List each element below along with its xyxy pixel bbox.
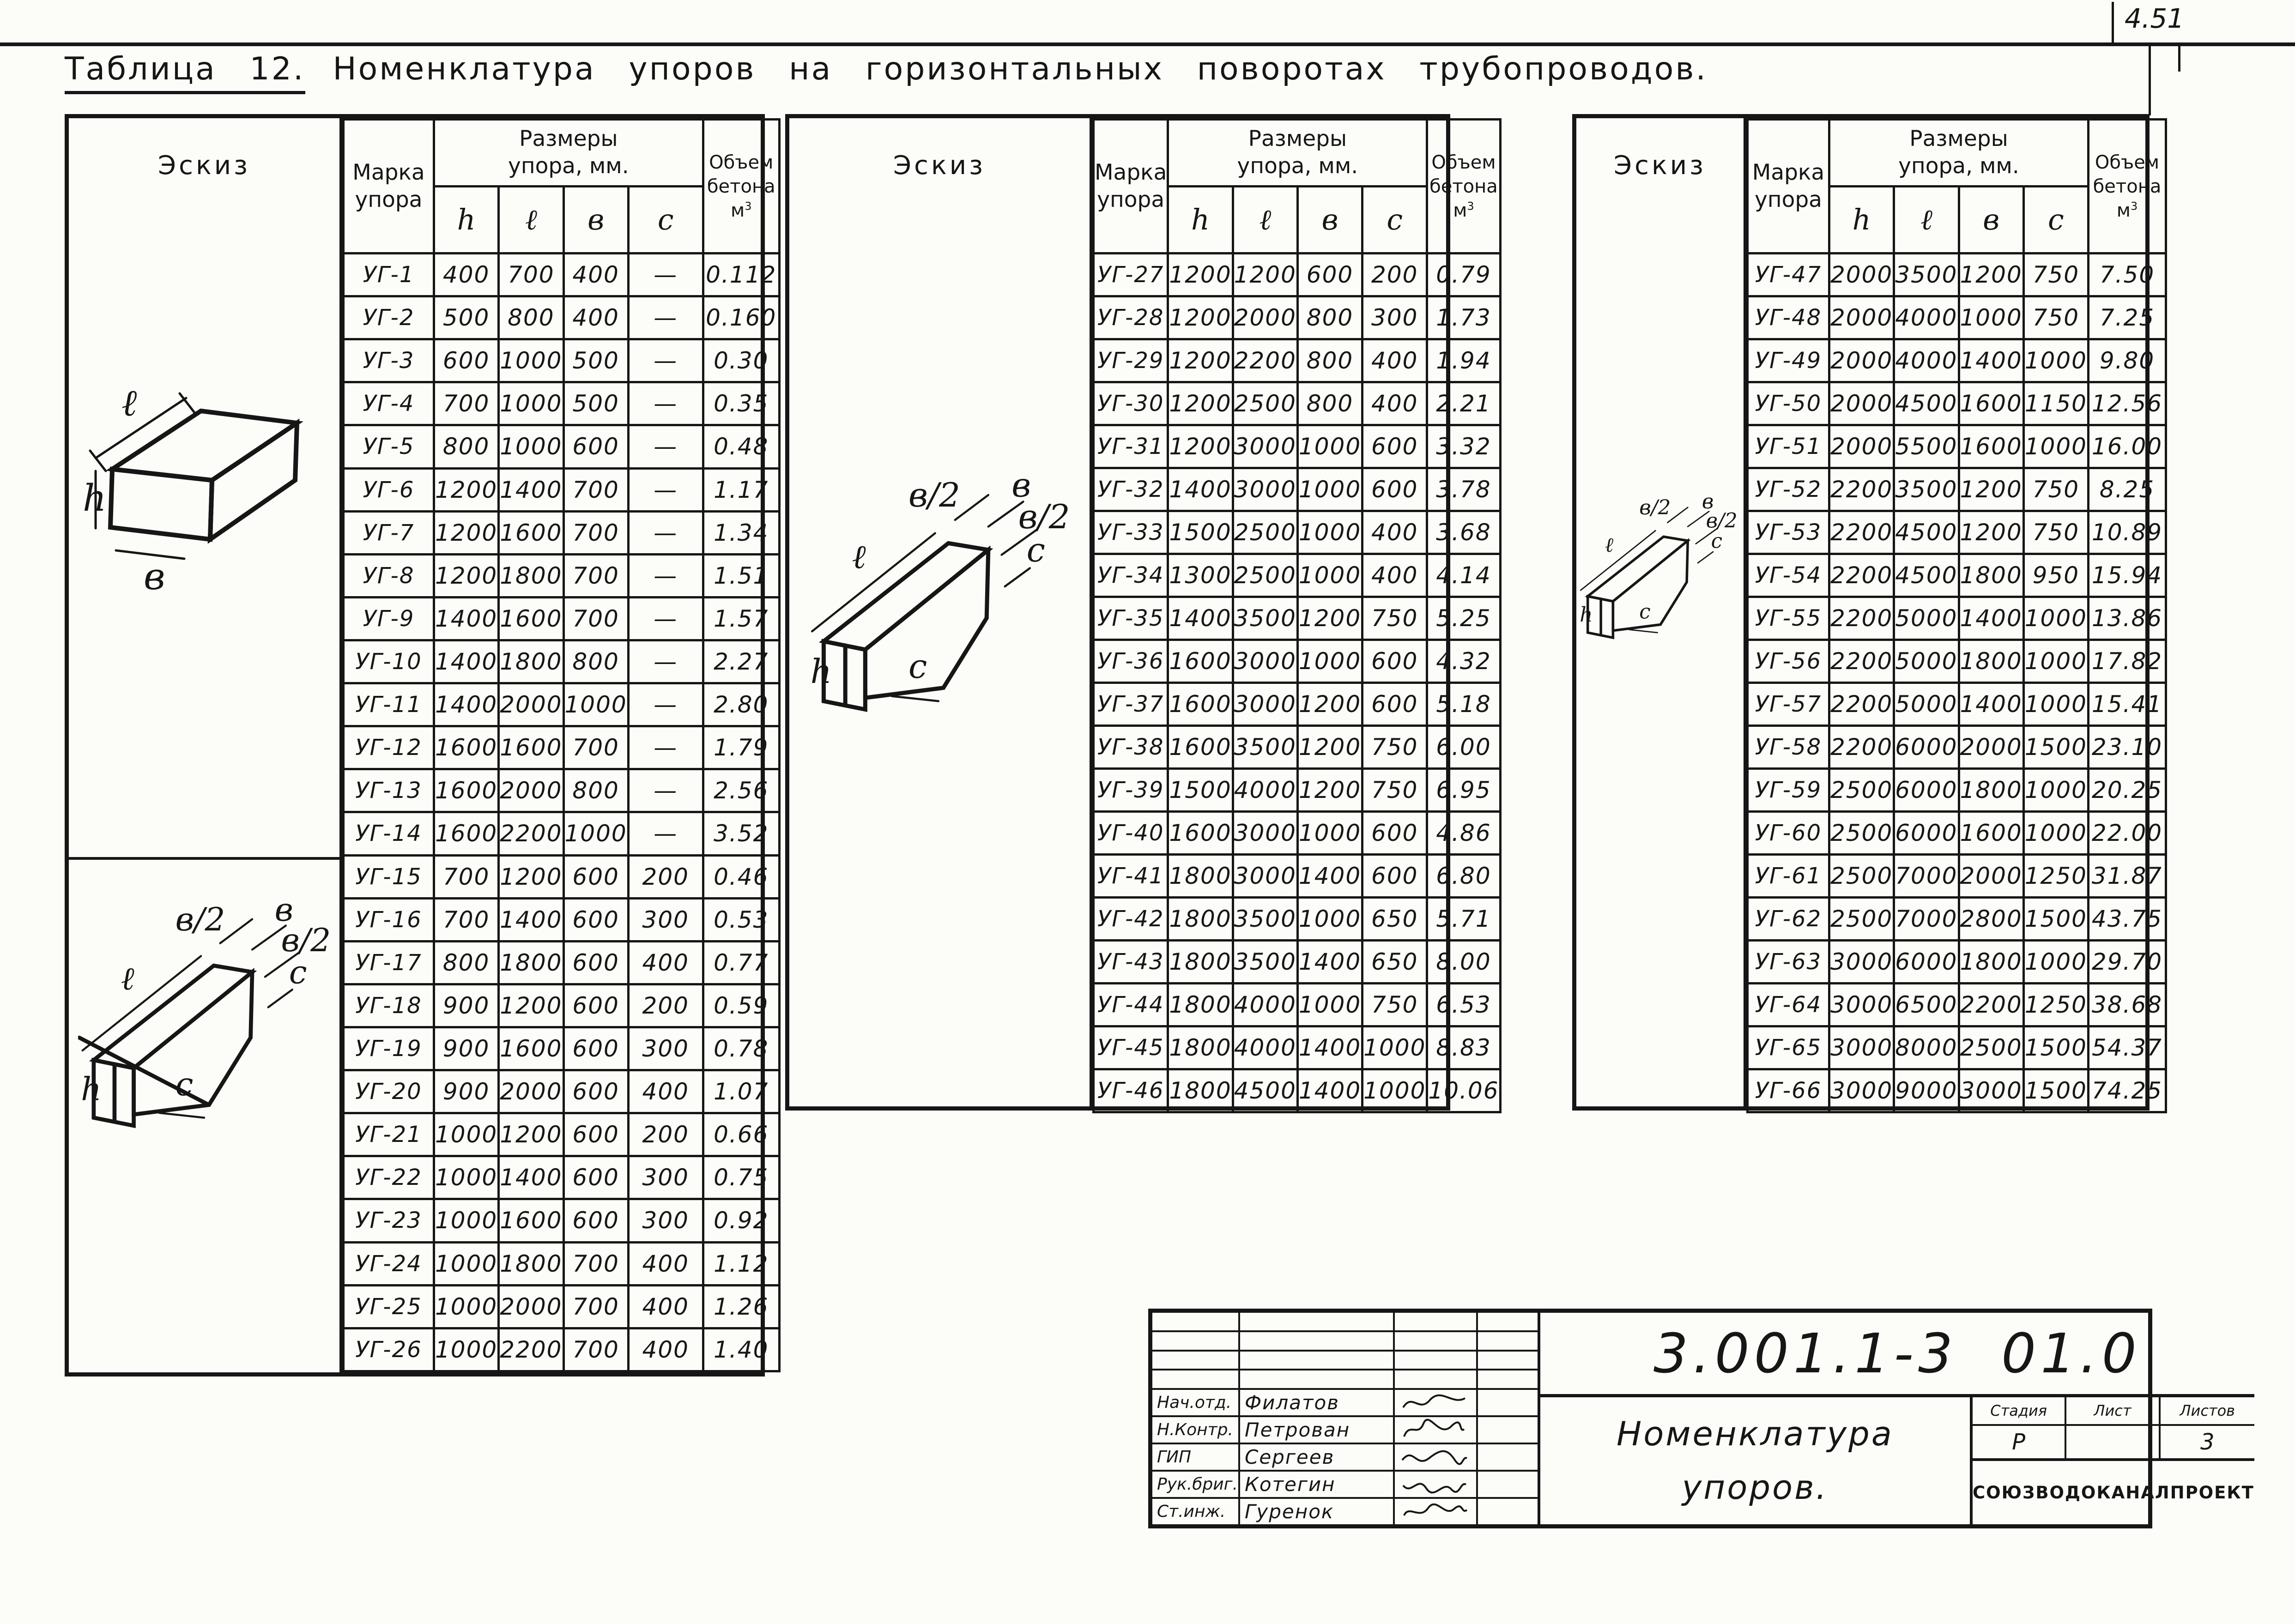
dim-c-label: с xyxy=(908,647,927,686)
empty-row xyxy=(1152,1332,1538,1352)
value-cell: 1600 xyxy=(1168,726,1233,769)
value-cell: 600 xyxy=(563,855,628,898)
value-cell: 1200 xyxy=(1297,597,1362,640)
value-cell: 2500 xyxy=(1959,1026,2023,1069)
value-cell: 4500 xyxy=(1894,382,1959,425)
value-cell: 54.37 xyxy=(2089,1026,2166,1069)
value-cell: 4000 xyxy=(1233,1026,1297,1069)
mark-cell: УГ-56 xyxy=(1748,640,1829,683)
value-cell: 750 xyxy=(1362,726,1427,769)
value-cell: 1000 xyxy=(1297,812,1362,855)
value-cell: 1000 xyxy=(434,1242,499,1285)
table-row: УГ-411800300014006006.80 xyxy=(1094,855,1501,898)
value-cell: 4000 xyxy=(1894,296,1959,339)
value-cell: 600 xyxy=(563,898,628,941)
value-cell: 600 xyxy=(563,1199,628,1242)
mark-cell: УГ-54 xyxy=(1748,554,1829,597)
value-cell: 1800 xyxy=(1168,1026,1233,1069)
value-cell: 4500 xyxy=(1894,554,1959,597)
dim-l-header: ℓ xyxy=(499,187,563,254)
sheets-header: Листов xyxy=(2161,1397,2254,1426)
value-cell: 1.17 xyxy=(703,468,779,511)
value-cell: 3000 xyxy=(1233,425,1297,468)
value-cell: 600 xyxy=(563,1113,628,1156)
table-row: УГ-28120020008003001.73 xyxy=(1094,296,1501,339)
value-cell: 6.00 xyxy=(1427,726,1500,769)
corner-tick-left xyxy=(2112,2,2114,42)
value-cell: 1400 xyxy=(1959,339,2023,382)
value-cell: 400 xyxy=(628,1070,703,1113)
value-cell: 2000 xyxy=(1829,382,1894,425)
value-cell: 1.12 xyxy=(703,1242,779,1285)
mark-cell: УГ-53 xyxy=(1748,511,1829,554)
value-cell: 2500 xyxy=(1829,812,1894,855)
value-cell: 1150 xyxy=(2023,382,2088,425)
table-row: УГ-1014001800800—2.27 xyxy=(344,640,780,683)
table-row: УГ-24100018007004001.12 xyxy=(344,1242,780,1285)
table-row: УГ-64300065002200125038.68 xyxy=(1748,984,2166,1026)
value-cell: 1800 xyxy=(1959,769,2023,812)
table-row: УГ-63300060001800100029.70 xyxy=(1748,941,2166,984)
mark-header: Маркаупора xyxy=(344,120,434,254)
value-cell: 1200 xyxy=(1168,382,1233,425)
value-cell: 1400 xyxy=(499,468,563,511)
value-cell: 400 xyxy=(563,254,628,296)
dim-l-label: ℓ xyxy=(1605,533,1614,557)
mark-cell: УГ-62 xyxy=(1748,898,1829,941)
drawing-sheet: 4.51 Таблица 12.Номенклатура упоров на г… xyxy=(0,0,2295,1624)
value-cell: 1.26 xyxy=(703,1285,779,1328)
value-cell: 500 xyxy=(434,296,499,339)
value-cell: 20.25 xyxy=(2089,769,2166,812)
value-cell: 5.18 xyxy=(1427,683,1500,726)
mark-cell: УГ-58 xyxy=(1748,726,1829,769)
mark-cell: УГ-14 xyxy=(344,812,434,855)
value-cell: 3.68 xyxy=(1427,511,1500,554)
value-cell: 6000 xyxy=(1894,941,1959,984)
value-cell: 300 xyxy=(628,1199,703,1242)
mark-cell: УГ-41 xyxy=(1094,855,1168,898)
mark-cell: УГ-18 xyxy=(344,984,434,1027)
table-row: УГ-46180045001400100010.06 xyxy=(1094,1069,1501,1112)
value-cell: 3500 xyxy=(1894,468,1959,511)
value-cell: 1500 xyxy=(1168,511,1233,554)
value-cell: 2000 xyxy=(1829,254,1894,296)
value-cell: 800 xyxy=(1297,296,1362,339)
value-cell: 2200 xyxy=(1233,339,1297,382)
top-frame-line xyxy=(0,42,2295,46)
mark-cell: УГ-51 xyxy=(1748,425,1829,468)
dim-h-header: h xyxy=(1168,187,1233,254)
table-body-3: УГ-472000350012007507.50УГ-4820004000100… xyxy=(1748,254,2166,1112)
value-cell: 1000 xyxy=(2023,941,2088,984)
table-row: УГ-50200045001600115012.56 xyxy=(1748,382,2166,425)
value-cell: 1000 xyxy=(2023,769,2088,812)
value-cell: 600 xyxy=(563,1156,628,1199)
value-cell: 1800 xyxy=(499,1242,563,1285)
value-cell: 1200 xyxy=(499,984,563,1027)
value-cell: 2000 xyxy=(499,683,563,726)
value-cell: 750 xyxy=(1362,984,1427,1026)
value-cell: 600 xyxy=(1297,254,1362,296)
value-cell: 9000 xyxy=(1894,1069,1959,1112)
value-cell: 2.27 xyxy=(703,640,779,683)
value-cell: 1600 xyxy=(499,726,563,769)
volume-header: Объембетонам3 xyxy=(1427,120,1500,254)
value-cell: 1600 xyxy=(434,769,499,812)
dim-b-half-label: в/2 xyxy=(176,903,225,938)
value-cell: — xyxy=(628,640,703,683)
value-cell: 400 xyxy=(628,941,703,984)
value-cell: 5000 xyxy=(1894,640,1959,683)
value-cell: 5.71 xyxy=(1427,898,1500,941)
signature-row: Рук.бриг. Котегин xyxy=(1152,1472,1538,1499)
table-row: УГ-57220050001400100015.41 xyxy=(1748,683,2166,726)
value-cell: — xyxy=(628,597,703,640)
dim-b-label: в xyxy=(144,555,165,598)
value-cell: 7000 xyxy=(1894,855,1959,898)
signature-role: Н.Контр. xyxy=(1152,1417,1240,1443)
value-cell: 2800 xyxy=(1959,898,2023,941)
value-cell: 2000 xyxy=(1959,855,2023,898)
value-cell: 1600 xyxy=(434,812,499,855)
table-header: Маркаупора Размерыупора, мм. Объембетона… xyxy=(1748,120,2166,254)
value-cell: 3500 xyxy=(1233,941,1297,984)
value-cell: 700 xyxy=(434,898,499,941)
value-cell: 400 xyxy=(434,254,499,296)
value-cell: 3000 xyxy=(1829,941,1894,984)
value-cell: 4000 xyxy=(1894,339,1959,382)
value-cell: 3000 xyxy=(1959,1069,2023,1112)
signature-mark xyxy=(1399,1444,1469,1470)
value-cell: 800 xyxy=(563,769,628,812)
table-row: УГ-1780018006004000.77 xyxy=(344,941,780,984)
value-cell: 700 xyxy=(563,726,628,769)
value-cell: 1800 xyxy=(1168,855,1233,898)
value-cell: 1600 xyxy=(434,726,499,769)
value-cell: 1400 xyxy=(499,898,563,941)
value-cell: — xyxy=(628,554,703,597)
value-cell: 2200 xyxy=(1829,597,1894,640)
value-cell: 0.78 xyxy=(703,1027,779,1070)
value-cell: 5.25 xyxy=(1427,597,1500,640)
value-cell: 400 xyxy=(1362,339,1427,382)
value-cell: 8.00 xyxy=(1427,941,1500,984)
value-cell: 1.34 xyxy=(703,511,779,554)
value-cell: 1200 xyxy=(499,1113,563,1156)
signature-name: Котегин xyxy=(1240,1472,1395,1497)
mark-cell: УГ-3 xyxy=(344,339,434,382)
mark-cell: УГ-50 xyxy=(1748,382,1829,425)
value-cell: 3500 xyxy=(1233,597,1297,640)
dim-h-header: h xyxy=(1829,187,1894,254)
dim-b-header: в xyxy=(1297,187,1362,254)
value-cell: 1200 xyxy=(1959,511,2023,554)
value-cell: 1000 xyxy=(1297,425,1362,468)
value-cell: 1000 xyxy=(1959,296,2023,339)
value-cell: 1400 xyxy=(1297,1026,1362,1069)
value-cell: 0.46 xyxy=(703,855,779,898)
value-cell: 8.83 xyxy=(1427,1026,1500,1069)
dim-c-label: с xyxy=(176,1066,194,1103)
mark-cell: УГ-28 xyxy=(1094,296,1168,339)
chamfer-block-sketch-1: ℓ в/2 в в/2 с h с xyxy=(78,903,337,1143)
value-cell: 2200 xyxy=(1829,511,1894,554)
mark-cell: УГ-40 xyxy=(1094,812,1168,855)
table-group-3: Эскиз ℓ в/2 в в/2 с h с xyxy=(1572,114,2150,1111)
value-cell: 1000 xyxy=(2023,339,2088,382)
value-cell: 200 xyxy=(628,1113,703,1156)
value-cell: 400 xyxy=(1362,554,1427,597)
value-cell: 1.73 xyxy=(1427,296,1500,339)
value-cell: 0.160 xyxy=(703,296,779,339)
mark-cell: УГ-44 xyxy=(1094,984,1168,1026)
signature-row: ГИП Сергеев xyxy=(1152,1444,1538,1472)
value-cell: 3.52 xyxy=(703,812,779,855)
value-cell: 4000 xyxy=(1233,984,1297,1026)
value-cell: 1400 xyxy=(434,683,499,726)
dim-c-header: с xyxy=(1362,187,1427,254)
value-cell: 1200 xyxy=(434,554,499,597)
table-row: УГ-321400300010006003.78 xyxy=(1094,468,1501,511)
mark-cell: УГ-17 xyxy=(344,941,434,984)
mark-cell: УГ-47 xyxy=(1748,254,1829,296)
value-cell: 2000 xyxy=(499,1070,563,1113)
value-cell: 400 xyxy=(628,1285,703,1328)
value-cell: 650 xyxy=(1362,898,1427,941)
mark-cell: УГ-63 xyxy=(1748,941,1829,984)
value-cell: 3000 xyxy=(1829,1069,1894,1112)
stage-value-row: Р 3 xyxy=(1973,1426,2254,1461)
value-cell: 750 xyxy=(2023,468,2088,511)
corner-tick-below xyxy=(2149,46,2151,115)
value-cell: 7.25 xyxy=(2089,296,2166,339)
data-table-3: Маркаупора Размерыупора, мм. Объембетона… xyxy=(1746,118,2167,1113)
table-row: УГ-351400350012007505.25 xyxy=(1094,597,1501,640)
value-cell: 2000 xyxy=(499,1285,563,1328)
value-cell: 1600 xyxy=(1168,812,1233,855)
value-cell: 600 xyxy=(563,941,628,984)
table-row: УГ-311200300010006003.32 xyxy=(1094,425,1501,468)
table-row: УГ-11140020001000—2.80 xyxy=(344,683,780,726)
value-cell: 4500 xyxy=(1233,1069,1297,1112)
value-cell: 15.41 xyxy=(2089,683,2166,726)
table-row: УГ-341300250010004004.14 xyxy=(1094,554,1501,597)
stage-value: Р xyxy=(1973,1426,2066,1461)
table-row: УГ-51200055001600100016.00 xyxy=(1748,425,2166,468)
table-row: УГ-65300080002500150054.37 xyxy=(1748,1026,2166,1069)
value-cell: 31.87 xyxy=(2089,855,2166,898)
value-cell: — xyxy=(628,511,703,554)
value-cell: 650 xyxy=(1362,941,1427,984)
value-cell: 1200 xyxy=(434,511,499,554)
dim-c-label: с xyxy=(1027,531,1045,569)
mark-cell: УГ-60 xyxy=(1748,812,1829,855)
table-row: УГ-26100022007004001.40 xyxy=(344,1328,780,1371)
value-cell: 1000 xyxy=(2023,597,2088,640)
value-cell: 1800 xyxy=(1168,898,1233,941)
value-cell: 1500 xyxy=(1168,769,1233,812)
value-cell: 900 xyxy=(434,984,499,1027)
value-cell: 38.68 xyxy=(2089,984,2166,1026)
mark-cell: УГ-4 xyxy=(344,382,434,425)
dim-h-label: h xyxy=(1580,603,1593,627)
value-cell: 1.40 xyxy=(703,1328,779,1371)
signature-mark xyxy=(1399,1472,1469,1497)
table-group-2: Эскиз ℓ в/2 в в/2 с h с xyxy=(785,114,1450,1111)
table-row: УГ-47001000500—0.35 xyxy=(344,382,780,425)
value-cell: — xyxy=(628,769,703,812)
value-cell: — xyxy=(628,382,703,425)
value-cell: 2000 xyxy=(1829,339,1894,382)
value-cell: 1200 xyxy=(1297,726,1362,769)
signature-name: Петрован xyxy=(1240,1417,1395,1443)
value-cell: 0.92 xyxy=(703,1199,779,1242)
value-cell: 800 xyxy=(1297,382,1362,425)
value-cell: 0.79 xyxy=(1427,254,1500,296)
value-cell: 750 xyxy=(2023,296,2088,339)
value-cell: 1600 xyxy=(499,1199,563,1242)
value-cell: 400 xyxy=(1362,382,1427,425)
value-cell: 2.56 xyxy=(703,769,779,812)
value-cell: 1800 xyxy=(1168,984,1233,1026)
table-header: Маркаупора Размерыупора, мм. Объембетона… xyxy=(1094,120,1501,254)
table-row: УГ-472000350012007507.50 xyxy=(1748,254,2166,296)
value-cell: 600 xyxy=(1362,812,1427,855)
value-cell: 1600 xyxy=(499,511,563,554)
value-cell: 6.53 xyxy=(1427,984,1500,1026)
mark-cell: УГ-24 xyxy=(344,1242,434,1285)
mark-cell: УГ-43 xyxy=(1094,941,1168,984)
value-cell: 1800 xyxy=(499,554,563,597)
value-cell: 1200 xyxy=(499,855,563,898)
empty-row xyxy=(1152,1313,1538,1332)
dim-b-half-label: в/2 xyxy=(281,922,331,959)
value-cell: 750 xyxy=(2023,511,2088,554)
value-cell: 1000 xyxy=(1297,898,1362,941)
dim-c-label: с xyxy=(289,954,307,991)
value-cell: 7000 xyxy=(1894,898,1959,941)
value-cell: 4500 xyxy=(1894,511,1959,554)
value-cell: 1600 xyxy=(499,1027,563,1070)
value-cell: 3000 xyxy=(1233,683,1297,726)
chamfer-block-sketch-3: ℓ в/2 в в/2 с h с xyxy=(1579,497,1740,649)
value-cell: 2500 xyxy=(1829,769,1894,812)
value-cell: 300 xyxy=(628,898,703,941)
value-cell: 23.10 xyxy=(2089,726,2166,769)
table-row: УГ-431800350014006508.00 xyxy=(1094,941,1501,984)
value-cell: 600 xyxy=(434,339,499,382)
signature-row: Ст.инж. Гуренок xyxy=(1152,1499,1538,1524)
value-cell: 1200 xyxy=(1168,296,1233,339)
value-cell: 4000 xyxy=(1233,769,1297,812)
value-cell: 1200 xyxy=(1297,769,1362,812)
mark-cell: УГ-49 xyxy=(1748,339,1829,382)
value-cell: 800 xyxy=(1297,339,1362,382)
value-cell: 0.35 xyxy=(703,382,779,425)
mark-cell: УГ-20 xyxy=(344,1070,434,1113)
value-cell: 15.94 xyxy=(2089,554,2166,597)
value-cell: 1200 xyxy=(1959,254,2023,296)
rect-block-sketch: ℓ h в xyxy=(83,358,323,598)
table-row: УГ-1570012006002000.46 xyxy=(344,855,780,898)
mark-cell: УГ-45 xyxy=(1094,1026,1168,1069)
mark-cell: УГ-35 xyxy=(1094,597,1168,640)
dim-c-label: с xyxy=(1711,529,1723,553)
value-cell: 6000 xyxy=(1894,769,1959,812)
table-row: УГ-401600300010006004.86 xyxy=(1094,812,1501,855)
value-cell: 2500 xyxy=(1233,382,1297,425)
value-cell: 13.86 xyxy=(2089,597,2166,640)
table-row: УГ-30120025008004002.21 xyxy=(1094,382,1501,425)
value-cell: 700 xyxy=(434,382,499,425)
value-cell: — xyxy=(628,296,703,339)
signature-role: Нач.отд. xyxy=(1152,1390,1240,1415)
value-cell: 0.59 xyxy=(703,984,779,1027)
value-cell: 800 xyxy=(499,296,563,339)
value-cell: 1400 xyxy=(434,597,499,640)
value-cell: 600 xyxy=(1362,468,1427,511)
value-cell: 1000 xyxy=(563,683,628,726)
value-cell: 1000 xyxy=(434,1328,499,1371)
signature-mark xyxy=(1399,1499,1469,1524)
value-cell: 1400 xyxy=(499,1156,563,1199)
value-cell: 1800 xyxy=(1959,554,2023,597)
mark-cell: УГ-21 xyxy=(344,1113,434,1156)
signature-mark xyxy=(1399,1390,1469,1415)
value-cell: 1400 xyxy=(1168,597,1233,640)
table-title-text: Номенклатура упоров на горизонтальных по… xyxy=(333,51,1708,87)
table-label: Таблица 12. xyxy=(65,51,305,94)
value-cell: 2000 xyxy=(1829,425,1894,468)
sheet-title: Таблица 12.Номенклатура упоров на горизо… xyxy=(65,51,1708,87)
value-cell: 6.95 xyxy=(1427,769,1500,812)
value-cell: 1000 xyxy=(1297,640,1362,683)
table-row: УГ-1890012006002000.59 xyxy=(344,984,780,1027)
value-cell: 1000 xyxy=(1297,468,1362,511)
table-row: УГ-381600350012007506.00 xyxy=(1094,726,1501,769)
value-cell: 22.00 xyxy=(2089,812,2166,855)
dim-l-label: ℓ xyxy=(852,537,866,576)
signature-role: Рук.бриг. xyxy=(1152,1472,1240,1497)
value-cell: 1500 xyxy=(2023,726,2088,769)
dim-l-label: ℓ xyxy=(121,381,137,424)
value-cell: 2500 xyxy=(1233,554,1297,597)
corner-tick-short xyxy=(2178,46,2180,72)
value-cell: 2200 xyxy=(1829,468,1894,511)
mark-cell: УГ-64 xyxy=(1748,984,1829,1026)
table-row: УГ-21100012006002000.66 xyxy=(344,1113,780,1156)
value-cell: 800 xyxy=(563,640,628,683)
mark-cell: УГ-48 xyxy=(1748,296,1829,339)
data-table-2: Маркаупора Размерыупора, мм. Объембетона… xyxy=(1092,118,1502,1113)
mark-cell: УГ-61 xyxy=(1748,855,1829,898)
value-cell: 700 xyxy=(563,1328,628,1371)
signature-role: ГИП xyxy=(1152,1444,1240,1470)
value-cell: 2500 xyxy=(1829,855,1894,898)
value-cell: 1.94 xyxy=(1427,339,1500,382)
title-block: Нач.отд. Филатов Н.Контр. Петрован ГИП С… xyxy=(1148,1309,2152,1528)
value-cell: 0.75 xyxy=(703,1156,779,1199)
dim-c-header: с xyxy=(2023,187,2088,254)
value-cell: 2200 xyxy=(1829,683,1894,726)
value-cell: 16.00 xyxy=(2089,425,2166,468)
sizes-header: Размерыупора, мм. xyxy=(1829,120,2089,187)
value-cell: 3500 xyxy=(1233,726,1297,769)
value-cell: 3000 xyxy=(1829,1026,1894,1069)
sketch-header: Эскиз xyxy=(1576,151,1744,181)
dim-h-header: h xyxy=(434,187,499,254)
